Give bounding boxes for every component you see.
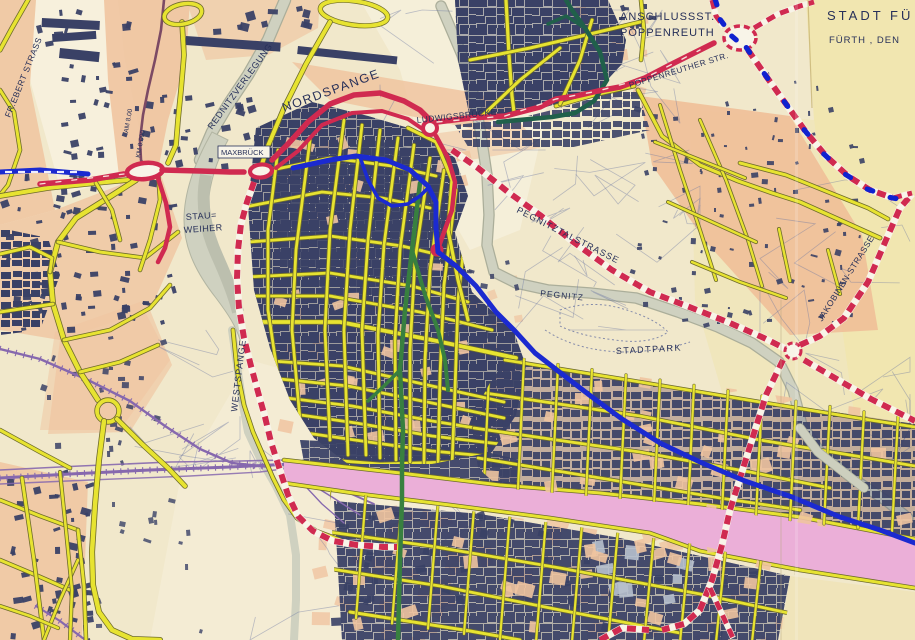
svg-text:ANSCHLUSSST.: ANSCHLUSSST. bbox=[620, 11, 715, 23]
svg-text:FÜRTH , DEN: FÜRTH , DEN bbox=[829, 35, 900, 46]
svg-text:MAXBRÜCK: MAXBRÜCK bbox=[221, 148, 264, 157]
svg-text:POPPENREUTH: POPPENREUTH bbox=[620, 27, 715, 39]
svg-text:STADT FÜ: STADT FÜ bbox=[827, 8, 913, 23]
